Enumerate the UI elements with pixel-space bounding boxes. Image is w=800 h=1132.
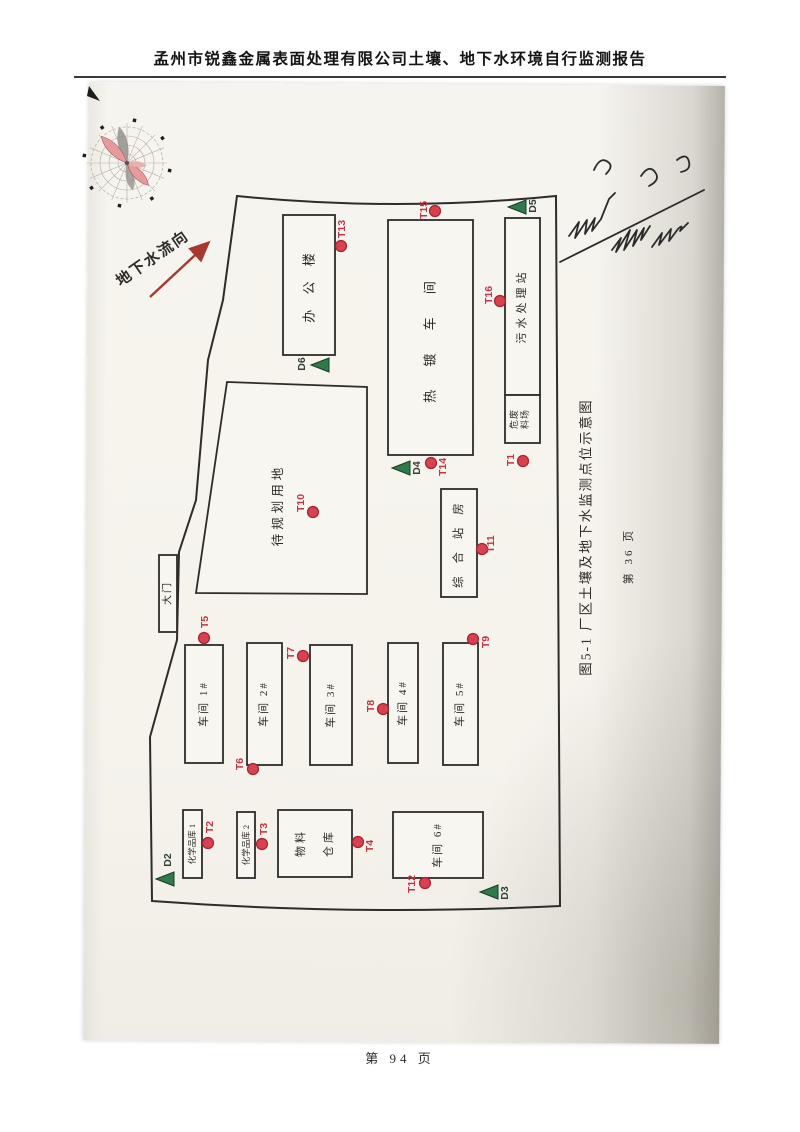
building-hot-plating-label: 热 镀 车 间 xyxy=(423,271,438,403)
point-t3-dot xyxy=(257,839,268,850)
building-utility-station: 综 合 站 房 xyxy=(441,489,477,597)
area-planned-label: 待规划用地 xyxy=(270,464,285,547)
point-t12-label: T12 xyxy=(406,875,418,893)
well-d5: D5 xyxy=(508,199,539,214)
point-t1-dot xyxy=(518,456,529,467)
point-t16-dot xyxy=(495,296,506,307)
point-t16: T16 xyxy=(483,286,506,307)
point-t16-label: T16 xyxy=(483,286,495,304)
point-t4: T4 xyxy=(353,837,377,853)
well-d4-triangle-icon xyxy=(392,461,410,475)
point-t3-label: T3 xyxy=(258,823,270,835)
workshop-4-label: 车间 4# xyxy=(395,680,409,726)
material-warehouse-outline xyxy=(278,810,352,877)
building-workshop-5: 车间 5# xyxy=(443,643,478,765)
building-workshop-3: 车间 3# xyxy=(310,645,352,765)
point-t1-label: T1 xyxy=(505,454,517,466)
point-t5-label: T5 xyxy=(199,616,211,628)
workshop-5-label: 车间 5# xyxy=(452,681,466,727)
point-t14: T14 xyxy=(426,458,450,477)
building-utility-label: 综 合 站 房 xyxy=(451,498,465,588)
building-hazwaste-label-2: 料场 xyxy=(519,409,530,429)
point-t2-label: T2 xyxy=(204,821,216,833)
point-t9-dot xyxy=(468,634,479,645)
well-d3-triangle-icon xyxy=(480,885,498,899)
handwritten-annotation xyxy=(560,156,704,262)
building-chemical-store-1: 化学品库 1 xyxy=(183,810,202,878)
point-t10-label: T10 xyxy=(295,494,307,512)
workshop-1-label: 车间 1# xyxy=(196,681,210,727)
point-t6-label: T6 xyxy=(234,758,246,770)
point-t5-dot xyxy=(199,633,210,644)
building-workshop-6: 车间 6# xyxy=(393,812,483,878)
well-d3-label: D3 xyxy=(499,886,511,900)
groundwater-flow: 地下水流向 xyxy=(112,226,207,297)
building-material-warehouse: 物料 仓库 xyxy=(278,810,352,877)
material-warehouse-label-2: 仓库 xyxy=(321,829,335,857)
site-map: 地下水流向 办 公 楼 热 镀 车 间 污水处理站 xyxy=(0,0,800,1132)
point-t7: T7 xyxy=(285,647,309,662)
point-t14-dot xyxy=(426,458,437,469)
chemical-store-2-label: 化学品库 2 xyxy=(241,825,251,865)
workshop-6-label: 车间 6# xyxy=(430,822,444,868)
building-sewage-treatment: 污水处理站 xyxy=(505,218,540,395)
point-t8: T8 xyxy=(365,700,389,715)
well-d2-triangle-icon xyxy=(156,872,174,886)
building-workshop-2: 车间 2# xyxy=(247,643,282,765)
point-t5: T5 xyxy=(199,616,212,644)
figure-caption: 图5-1 厂区土壤及地下水监测点位示意图 xyxy=(578,398,594,675)
chemical-store-1-label: 化学品库 1 xyxy=(187,824,197,864)
building-workshop-4: 车间 4# xyxy=(388,643,418,763)
point-t7-dot xyxy=(298,651,309,662)
report-page: 孟州市锐鑫金属表面处理有限公司土壤、地下水环境自行监测报告 xyxy=(0,0,800,1132)
point-t15-dot xyxy=(430,206,441,217)
point-t4-dot xyxy=(353,837,364,848)
building-workshop-1: 车间 1# xyxy=(185,645,223,763)
footer-page-number: 第 94 页 xyxy=(0,1048,800,1067)
point-t15-label: T15 xyxy=(418,201,430,219)
wind-rose-icon xyxy=(75,111,179,215)
well-d5-label: D5 xyxy=(527,199,539,213)
building-hazardous-waste-yard: 危废 料场 xyxy=(505,395,540,443)
point-t13-dot xyxy=(336,241,347,252)
well-d6-triangle-icon xyxy=(311,358,329,372)
well-d6: D6 xyxy=(296,357,329,372)
well-d5-triangle-icon xyxy=(508,200,526,214)
point-t1: T1 xyxy=(505,454,529,467)
building-office: 办 公 楼 xyxy=(283,215,335,355)
well-d2: D2 xyxy=(156,853,174,886)
building-gate: 大门 xyxy=(159,555,177,632)
well-d6-label: D6 xyxy=(296,357,308,371)
workshop-3-label: 车间 3# xyxy=(323,682,337,728)
point-t13-label: T13 xyxy=(336,220,348,238)
point-t11: T11 xyxy=(477,535,498,554)
building-gate-label: 大门 xyxy=(161,581,174,605)
well-d3: D3 xyxy=(480,885,511,900)
point-t14-label: T14 xyxy=(437,458,449,476)
scan-corner-artifact xyxy=(87,86,100,101)
building-chemical-store-2: 化学品库 2 xyxy=(237,812,255,878)
point-t9-label: T9 xyxy=(480,636,492,648)
building-sewage-label: 污水处理站 xyxy=(514,269,528,344)
well-d4: D4 xyxy=(392,461,423,475)
point-t2: T2 xyxy=(203,821,217,849)
flow-direction-label: 地下水流向 xyxy=(112,226,192,290)
point-t12-dot xyxy=(420,878,431,889)
material-warehouse-label-1: 物料 xyxy=(293,829,307,857)
area-planned-land: 待规划用地 xyxy=(196,382,367,594)
point-t13: T13 xyxy=(336,220,349,252)
point-t8-dot xyxy=(378,704,389,715)
point-t11-label: T11 xyxy=(485,535,497,553)
point-t7-label: T7 xyxy=(285,647,297,659)
point-t4-label: T4 xyxy=(364,840,376,852)
point-t2-dot xyxy=(203,838,214,849)
point-t6-dot xyxy=(248,764,259,775)
point-t3: T3 xyxy=(257,823,271,850)
building-hazwaste-label-1: 危废 xyxy=(508,409,519,429)
well-d4-label: D4 xyxy=(411,461,423,475)
figure-caption-page-note: 第 36 页 xyxy=(621,528,635,585)
building-hot-plating-workshop: 热 镀 车 间 xyxy=(388,220,473,455)
well-d2-label: D2 xyxy=(162,853,174,867)
point-t10-dot xyxy=(308,507,319,518)
point-t8-label: T8 xyxy=(365,700,377,712)
building-office-label: 办 公 楼 xyxy=(302,247,317,323)
workshop-2-label: 车间 2# xyxy=(256,681,270,727)
